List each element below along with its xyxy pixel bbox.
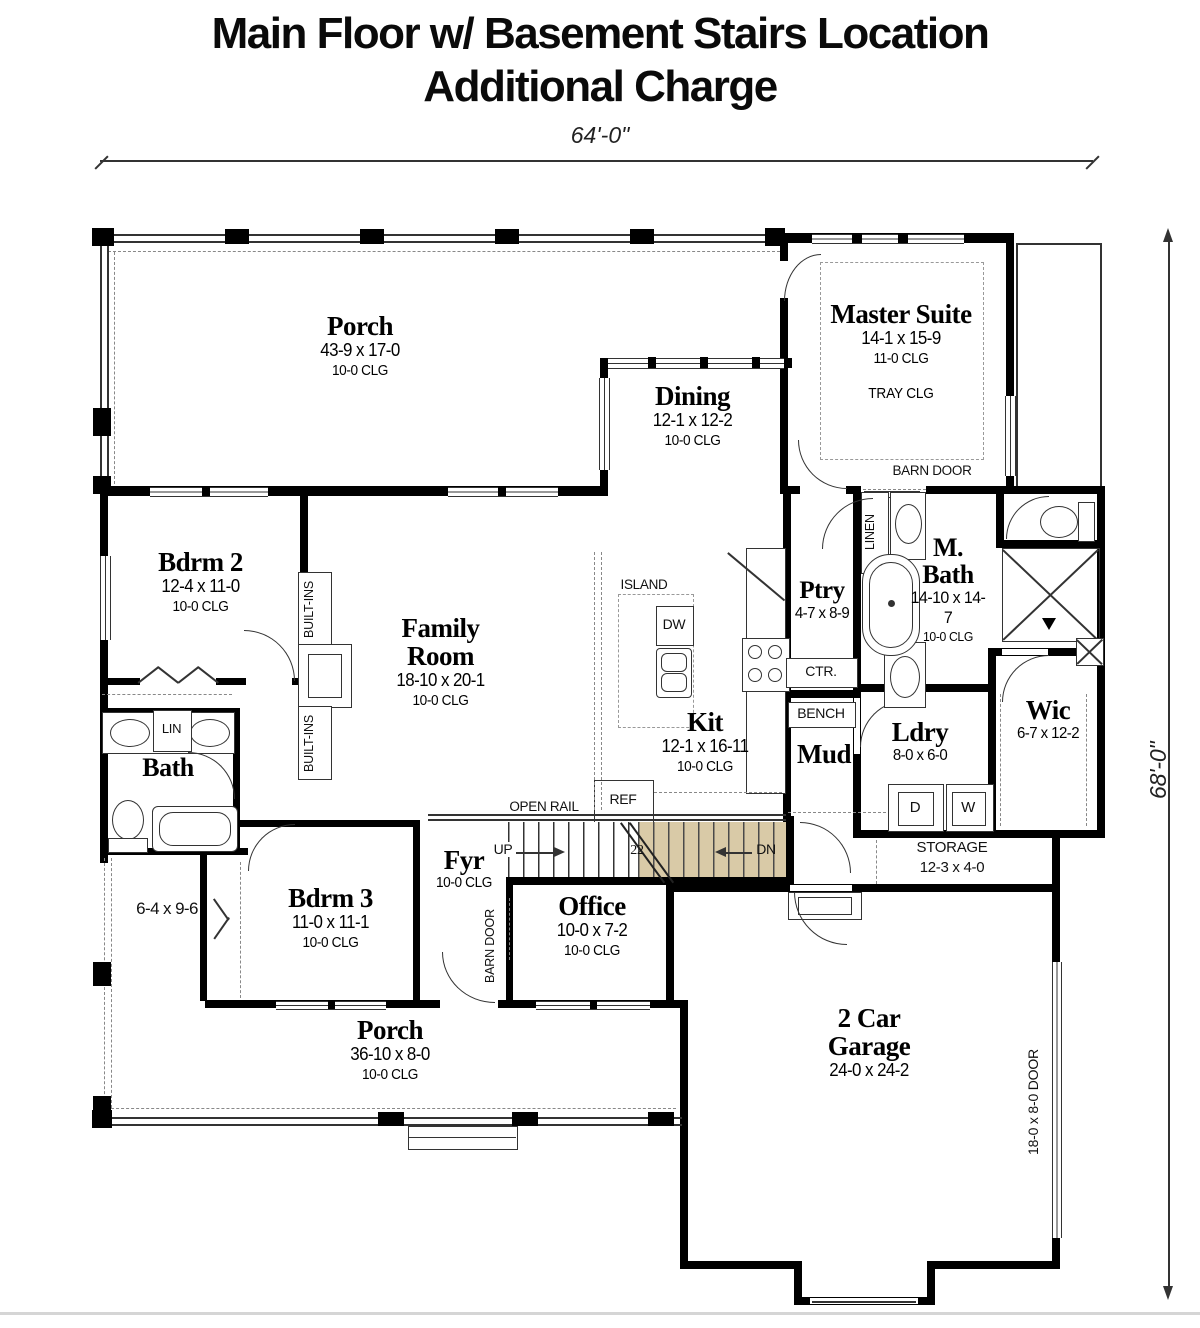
arrow-right-icon	[554, 847, 565, 857]
door-arc	[244, 630, 295, 681]
plan-title: Main Floor w/ Basement Stairs Location A…	[0, 8, 1200, 114]
porch-dashed-line	[111, 858, 112, 1108]
door-arc	[794, 892, 847, 945]
window-post	[752, 357, 760, 368]
counter-label: CTR.	[786, 664, 856, 679]
wall	[927, 1261, 1060, 1269]
window-post	[202, 486, 210, 496]
burner	[748, 645, 762, 659]
porch-dashed-line	[106, 1108, 676, 1109]
overall-width-dimension: 64'-0"	[520, 122, 680, 149]
island-label: ISLAND	[598, 578, 690, 592]
porch-column	[92, 228, 114, 246]
room-label-dining: Dining 12-1 x 12-2 10-0 CLG	[610, 382, 775, 450]
porch-dashed-line	[104, 858, 105, 1114]
porch-column	[360, 229, 384, 244]
wall	[861, 684, 993, 692]
door-line	[812, 1301, 916, 1303]
toilet-tank	[1078, 502, 1095, 542]
room-label-master-suite: Master Suite 14-1 x 15-9 11-0 CLG TRAY C…	[828, 300, 974, 402]
bifold-door	[198, 666, 219, 683]
room-label-bdrm2: Bdrm 2 12-4 x 11-0 10-0 CLG	[118, 548, 283, 616]
wall	[680, 1261, 802, 1269]
room-label-family-room: Family Room 18-10 x 20-1 10-0 CLG	[378, 614, 503, 710]
dimension-line	[1168, 240, 1170, 1288]
washer-label: W	[952, 800, 984, 816]
room-label-garage: 2 Car Garage 24-0 x 24-2	[798, 1004, 940, 1082]
room-label-office: Office 10-0 x 7-2 10-0 CLG	[518, 892, 666, 960]
garage-door-size-label: 18-0 x 8-0 DOOR	[1026, 1022, 1041, 1182]
plan-title-line1: Main Floor w/ Basement Stairs Location	[0, 8, 1200, 61]
wall	[100, 678, 140, 685]
porch-column	[93, 1096, 111, 1118]
door-arc	[248, 824, 295, 871]
window	[812, 234, 964, 244]
porch-edge	[100, 241, 786, 243]
burner	[768, 645, 782, 659]
wall	[506, 877, 786, 885]
side-porch-size-label: 6-4 x 9-6	[112, 900, 222, 918]
wall	[780, 233, 788, 261]
bifold-door	[158, 666, 179, 683]
fireplace-firebox	[308, 654, 342, 698]
porch-dashed-line	[114, 252, 115, 484]
porch-column	[495, 229, 519, 244]
counter-dashed-line	[788, 812, 886, 813]
porch-column	[225, 229, 249, 244]
dishwasher-label: DW	[656, 617, 692, 632]
wall	[216, 678, 246, 685]
wall	[100, 486, 108, 863]
door-arc	[822, 498, 873, 549]
window-post	[648, 357, 656, 368]
window-post	[328, 1000, 335, 1009]
window-post	[498, 486, 506, 496]
garage-door	[1052, 962, 1062, 1238]
sink	[110, 719, 150, 747]
sink	[190, 719, 230, 747]
storage-dashed-line	[876, 840, 877, 884]
bifold-door	[178, 666, 199, 683]
porch-dashed-line	[108, 251, 780, 252]
sink	[890, 656, 920, 698]
bench-label: BENCH	[788, 706, 854, 721]
dimension-line	[100, 160, 1093, 162]
wall	[413, 820, 420, 1007]
window-post	[590, 1000, 597, 1009]
counter-dashed-line	[654, 792, 782, 793]
cased-opening-line	[601, 552, 602, 810]
dimension-tick	[94, 155, 108, 169]
shower-marker-icon	[1042, 618, 1056, 630]
room-label-kitchen: Kit 12-1 x 16-11 10-0 CLG	[630, 708, 780, 776]
open-rail-line	[428, 814, 786, 816]
window	[1005, 396, 1016, 476]
room-label-foyer: Fyr 10-0 CLG	[422, 846, 506, 892]
floor-plan: Main Floor w/ Basement Stairs Location A…	[0, 0, 1200, 1328]
porch-column	[512, 1112, 538, 1126]
dryer-label: D	[898, 800, 932, 816]
porch-column	[378, 1112, 404, 1126]
wall	[783, 494, 791, 552]
ground-line	[0, 1312, 1200, 1315]
closet-dashed-line	[240, 862, 241, 998]
wall	[926, 486, 1006, 494]
burner	[768, 668, 782, 682]
tub-inner	[159, 812, 231, 846]
up-arrow-line	[516, 852, 554, 854]
tub-drain	[888, 600, 895, 607]
down-label: DN	[750, 842, 782, 857]
down-arrow-line	[726, 852, 752, 854]
wall	[1006, 486, 1105, 494]
burner	[748, 668, 762, 682]
window	[599, 378, 610, 470]
room-label-wic: Wic 6-7 x 12-2	[1000, 696, 1096, 743]
door-arc	[800, 822, 851, 873]
room-label-laundry: Ldry 8-0 x 6-0	[864, 718, 976, 765]
room-label-porch-top: Porch 43-9 x 17-0 10-0 CLG	[270, 312, 450, 380]
roof-edge	[1016, 243, 1018, 490]
wall	[200, 855, 207, 1001]
wall	[780, 486, 800, 494]
porch-edge	[107, 234, 109, 492]
wall	[240, 820, 420, 827]
built-ins-label: BUILT-INS	[303, 710, 316, 776]
storage-size-label: 12-3 x 4-0	[896, 860, 1008, 876]
wall	[680, 1000, 688, 1269]
roof-edge	[1016, 243, 1101, 245]
porch-edge	[100, 234, 102, 492]
room-label-pantry: Ptry 4-7 x 8-9	[786, 578, 858, 623]
arrow-left-icon	[715, 847, 726, 857]
porch-column	[630, 229, 654, 244]
arrow-down-icon	[1163, 1286, 1173, 1300]
built-ins-label: BUILT-INS	[303, 576, 316, 642]
wall	[666, 884, 1060, 892]
barn-door-track	[858, 489, 926, 490]
wall	[783, 690, 861, 698]
room-label-bdrm3: Bdrm 3 11-0 x 11-1 10-0 CLG	[248, 884, 413, 952]
porch-column	[93, 962, 111, 986]
room-label-mud: Mud	[788, 740, 860, 768]
porch-column	[93, 408, 111, 436]
front-stoop-step	[408, 1137, 516, 1138]
bifold-door	[213, 917, 229, 939]
wall	[786, 816, 794, 884]
porch-column	[648, 1112, 674, 1126]
plan-title-line2: Additional Charge	[0, 61, 1200, 114]
tray-ceiling-label: TRAY CLG	[832, 386, 969, 402]
wall	[666, 884, 674, 1008]
toilet-tank	[108, 838, 148, 853]
refrigerator-label: REF	[594, 792, 652, 807]
sink-bowl	[661, 673, 687, 692]
open-rail-line	[428, 819, 786, 821]
porch-edge	[100, 234, 786, 236]
window-post	[898, 233, 908, 243]
room-label-bath: Bath	[118, 754, 218, 781]
window	[100, 556, 111, 640]
window-post	[700, 357, 708, 368]
room-label-porch-bottom: Porch 36-10 x 8-0 10-0 CLG	[300, 1016, 480, 1084]
door-arc	[1006, 496, 1049, 539]
door-opening	[1002, 649, 1048, 655]
room-label-master-bath: M. Bath 14-10 x 14-7 10-0 CLG	[905, 534, 991, 645]
dimension-tick	[1085, 155, 1099, 169]
sink-bowl	[661, 653, 687, 672]
cased-opening-line	[594, 552, 595, 810]
linen-label: LIN	[155, 722, 188, 736]
barn-door-label-master: BARN DOOR	[884, 464, 980, 478]
wall	[780, 298, 788, 494]
wall	[996, 494, 1004, 546]
front-stoop	[408, 1126, 518, 1150]
stair-count-note: 22	[624, 844, 650, 859]
overall-height-dimension: 68'-0"	[1146, 690, 1170, 850]
barn-door-label-office: BARN DOOR	[484, 908, 497, 984]
window-post	[852, 233, 862, 243]
toilet	[112, 800, 144, 840]
open-rail-label: OPEN RAIL	[496, 800, 592, 814]
arrow-up-icon	[1163, 228, 1173, 242]
barn-door-track	[509, 898, 510, 960]
closet-shelf-line	[102, 694, 232, 695]
door-arc	[784, 254, 821, 301]
storage-label: STORAGE	[896, 840, 1008, 856]
roof-edge	[1100, 243, 1102, 488]
door-opening	[790, 885, 852, 891]
bifold-door	[138, 666, 159, 683]
